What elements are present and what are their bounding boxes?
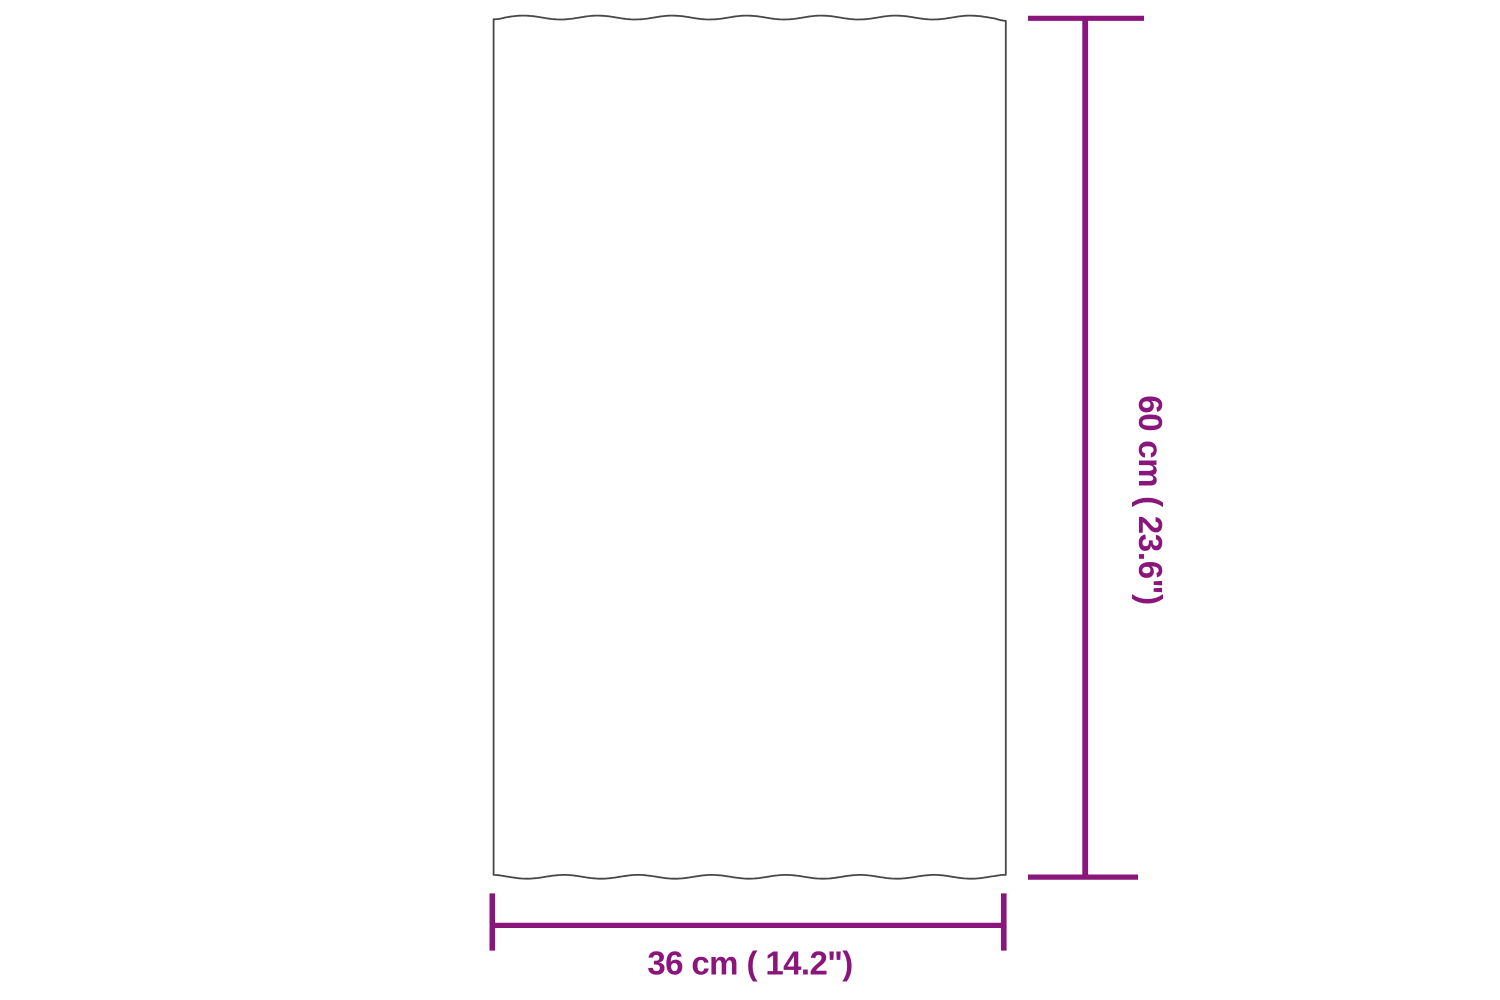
svg-text:60 cm ( 23.6"): 60 cm ( 23.6"): [1132, 395, 1169, 605]
svg-text:36 cm ( 14.2"): 36 cm ( 14.2"): [647, 944, 852, 981]
